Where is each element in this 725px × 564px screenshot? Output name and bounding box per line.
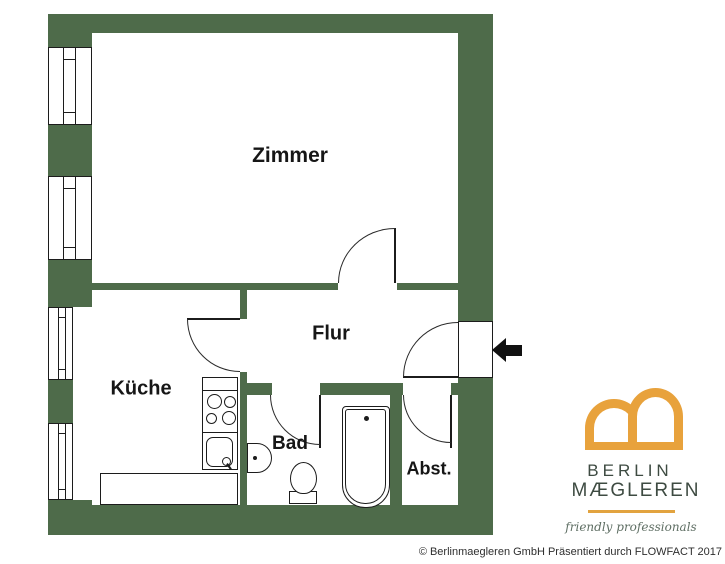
wall-bottom <box>48 505 493 535</box>
wall-divider-flur <box>320 383 403 395</box>
room-label-flur: Flur <box>312 323 350 346</box>
door-arc <box>338 228 395 283</box>
logo-arch-right-icon <box>628 388 683 450</box>
wall-divider-zimmer <box>397 283 458 290</box>
washbasin-icon <box>247 443 272 473</box>
entrance-opening <box>458 321 493 378</box>
bathtub-icon <box>342 406 390 508</box>
wall-kueche-right <box>240 290 247 319</box>
copyright-text: © Berlinmaegleren GmbH Präsentiert durch… <box>419 546 722 558</box>
room-label-kueche: Küche <box>110 378 171 401</box>
door-arc <box>187 319 240 372</box>
wall-left-corner <box>48 500 92 535</box>
wall-divider-flur <box>240 383 272 395</box>
wall-divider-zimmer <box>92 283 338 290</box>
logo-divider <box>588 510 675 513</box>
wall-left-pier <box>48 380 73 423</box>
door-arc <box>403 395 451 443</box>
floorplan-page: Zimmer Küche Flur Bad Abst. BERLIN MÆGLE… <box>0 0 725 564</box>
entrance-arrow-shaft <box>505 345 522 356</box>
entrance-arrow-icon <box>492 338 506 362</box>
window-icon <box>48 176 92 260</box>
kitchen-counter <box>100 473 238 505</box>
wall-divider-flur <box>451 383 458 395</box>
door-arc <box>403 322 458 377</box>
room-label-abst: Abst. <box>407 459 452 480</box>
room-label-zimmer: Zimmer <box>252 144 328 168</box>
logo-tagline: friendly professionals <box>565 520 696 534</box>
wall-top <box>48 14 493 33</box>
wall-bad-abst <box>390 395 402 505</box>
window-icon <box>48 423 73 500</box>
logo-line2: MÆGLEREN <box>572 480 701 502</box>
wall-right-upper <box>458 14 493 321</box>
wall-left-pier <box>48 33 92 47</box>
toilet-bowl-icon <box>290 462 317 494</box>
window-icon <box>48 307 73 380</box>
room-label-bad: Bad <box>272 433 308 455</box>
wall-left-pier <box>48 260 92 307</box>
window-icon <box>48 47 92 125</box>
wall-left-pier <box>48 125 92 176</box>
logo-line1: BERLIN <box>587 461 672 481</box>
